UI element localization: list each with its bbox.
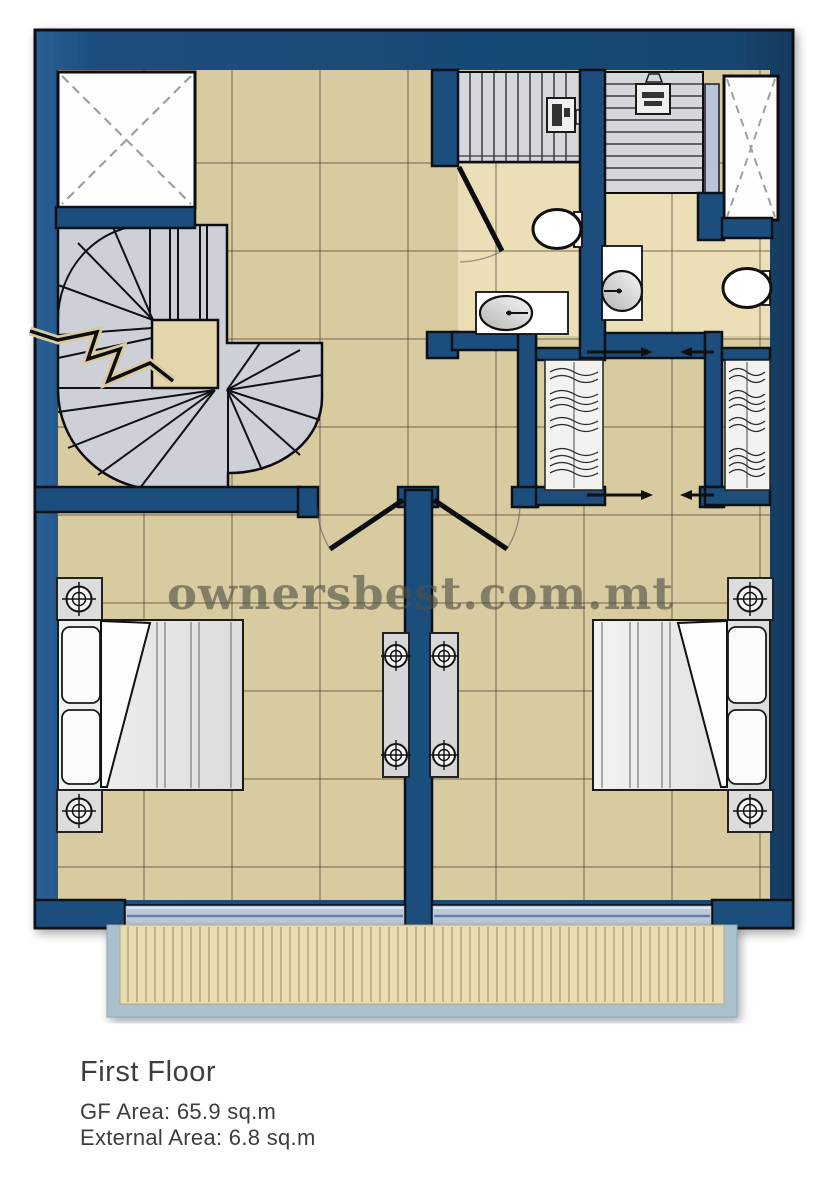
wardrobe-right: [725, 360, 770, 490]
nightstand: [728, 790, 773, 832]
external-area-label: External Area: 6.8 sq.m: [80, 1125, 316, 1151]
pillow: [62, 627, 100, 703]
toilet-1-icon: [533, 210, 582, 249]
staircase-up-right: [605, 72, 719, 193]
nightstand: [57, 790, 102, 832]
void-shaft-left: [58, 72, 195, 208]
vanity-2: [602, 246, 642, 320]
nightstand: [57, 578, 102, 620]
staircase-up-left: [458, 72, 584, 162]
void-shaft-right: [724, 76, 778, 220]
nightstand: [728, 578, 773, 620]
pillow: [728, 710, 766, 784]
double-bed: [593, 620, 770, 790]
wardrobe-left: [545, 360, 603, 490]
balcony-decking: [120, 925, 724, 1004]
gf-area-label: GF Area: 65.9 sq.m: [80, 1099, 276, 1125]
bedside-console-left: [381, 633, 411, 777]
stair-railing: [705, 84, 719, 193]
toilet-2-icon: [723, 269, 771, 308]
double-bed: [58, 620, 243, 790]
pillow: [62, 710, 100, 784]
floor-title: First Floor: [80, 1056, 216, 1089]
floor-plan: [0, 0, 826, 1200]
vanity-1: [476, 292, 568, 334]
pillow: [728, 627, 766, 703]
bedside-console-right: [429, 633, 459, 777]
balcony: [107, 925, 737, 1017]
